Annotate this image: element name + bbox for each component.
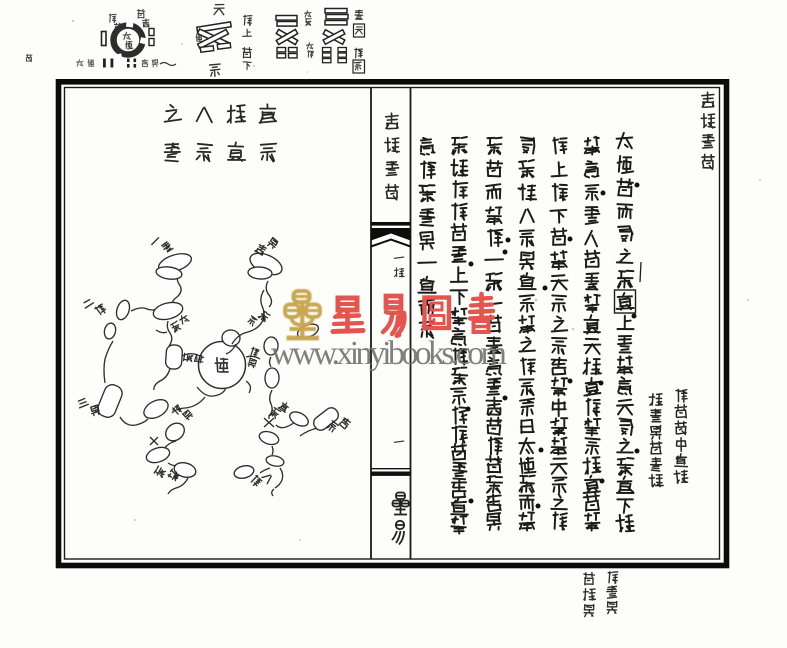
svg-text:www.xinyibooks.com: www.xinyibooks.com — [271, 335, 507, 372]
